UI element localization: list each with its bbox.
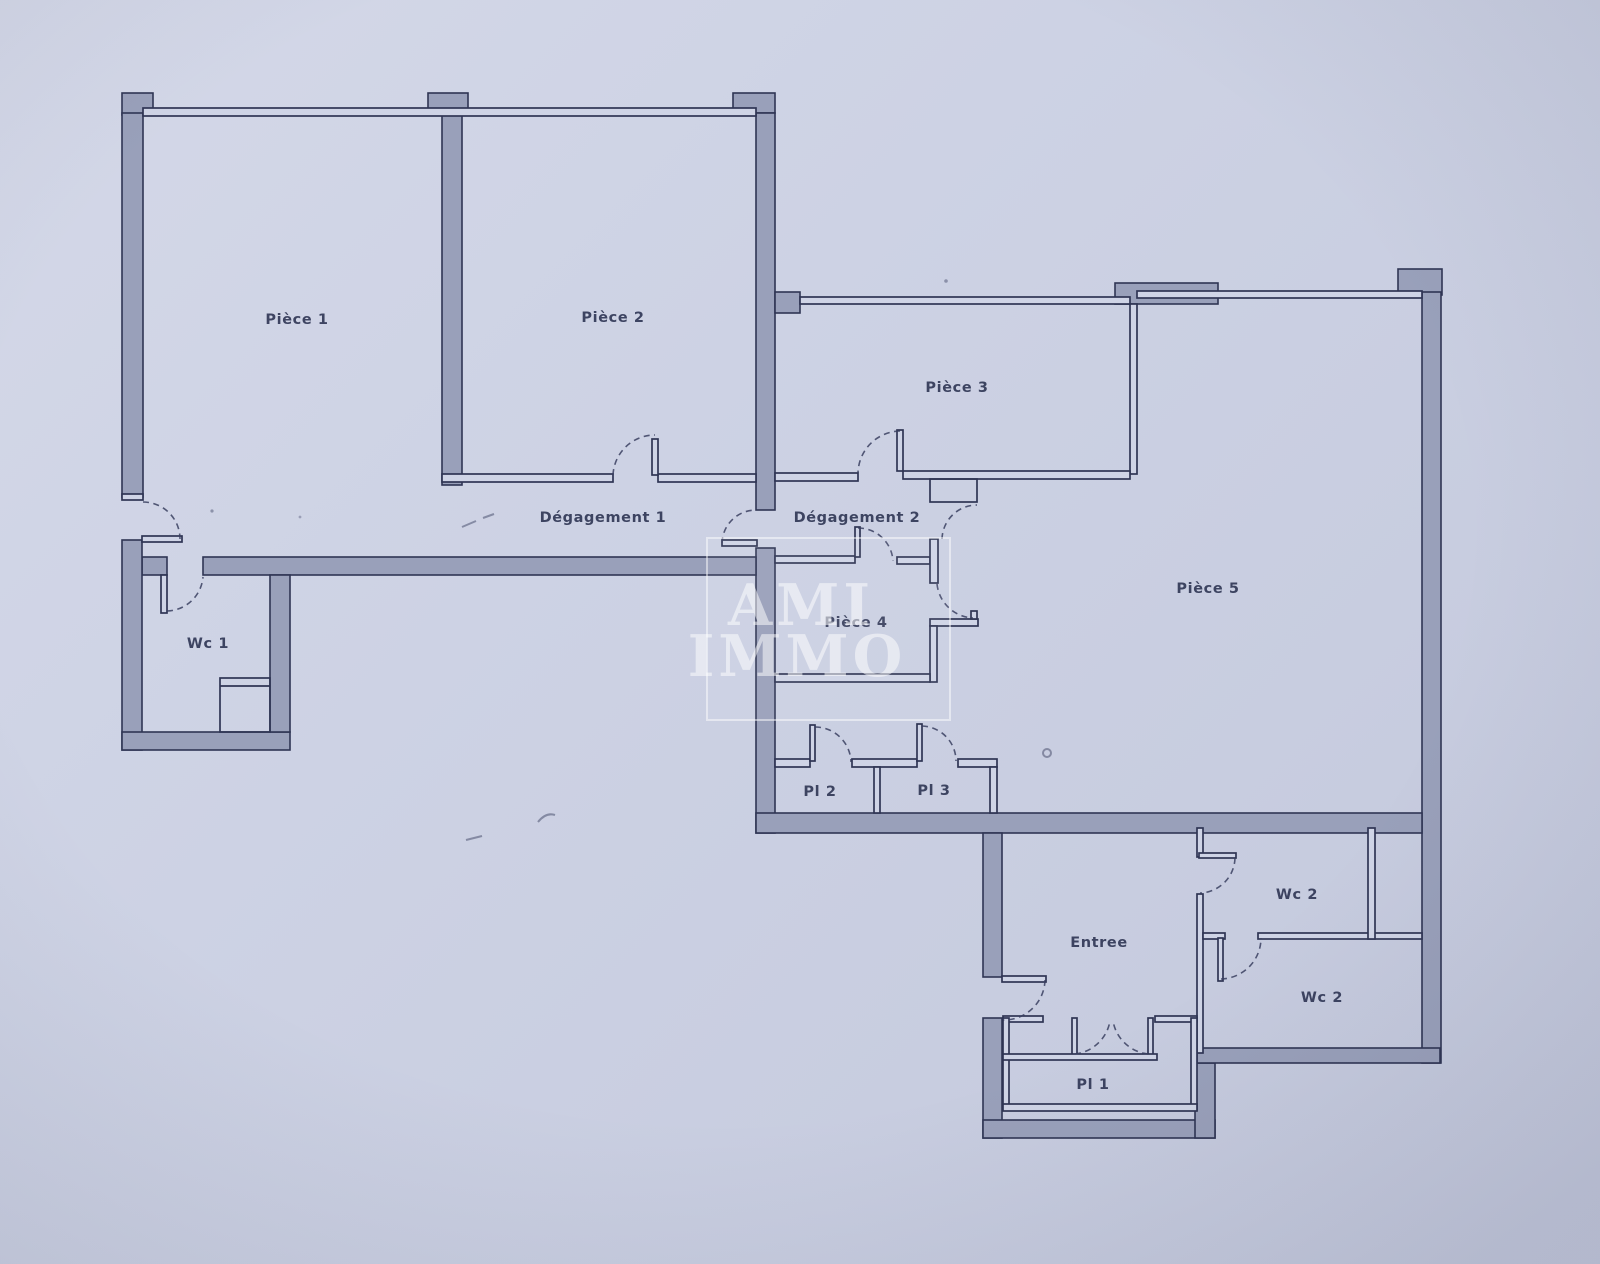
scanned-floor-plan-page: Pièce 1 Pièce 2 Pièce 3 Pièce 4 Pièce 5 …	[0, 0, 1600, 1264]
floor-plan-drawing: Pièce 1 Pièce 2 Pièce 3 Pièce 4 Pièce 5 …	[0, 0, 1600, 1264]
photo-vignette	[0, 0, 1600, 1264]
